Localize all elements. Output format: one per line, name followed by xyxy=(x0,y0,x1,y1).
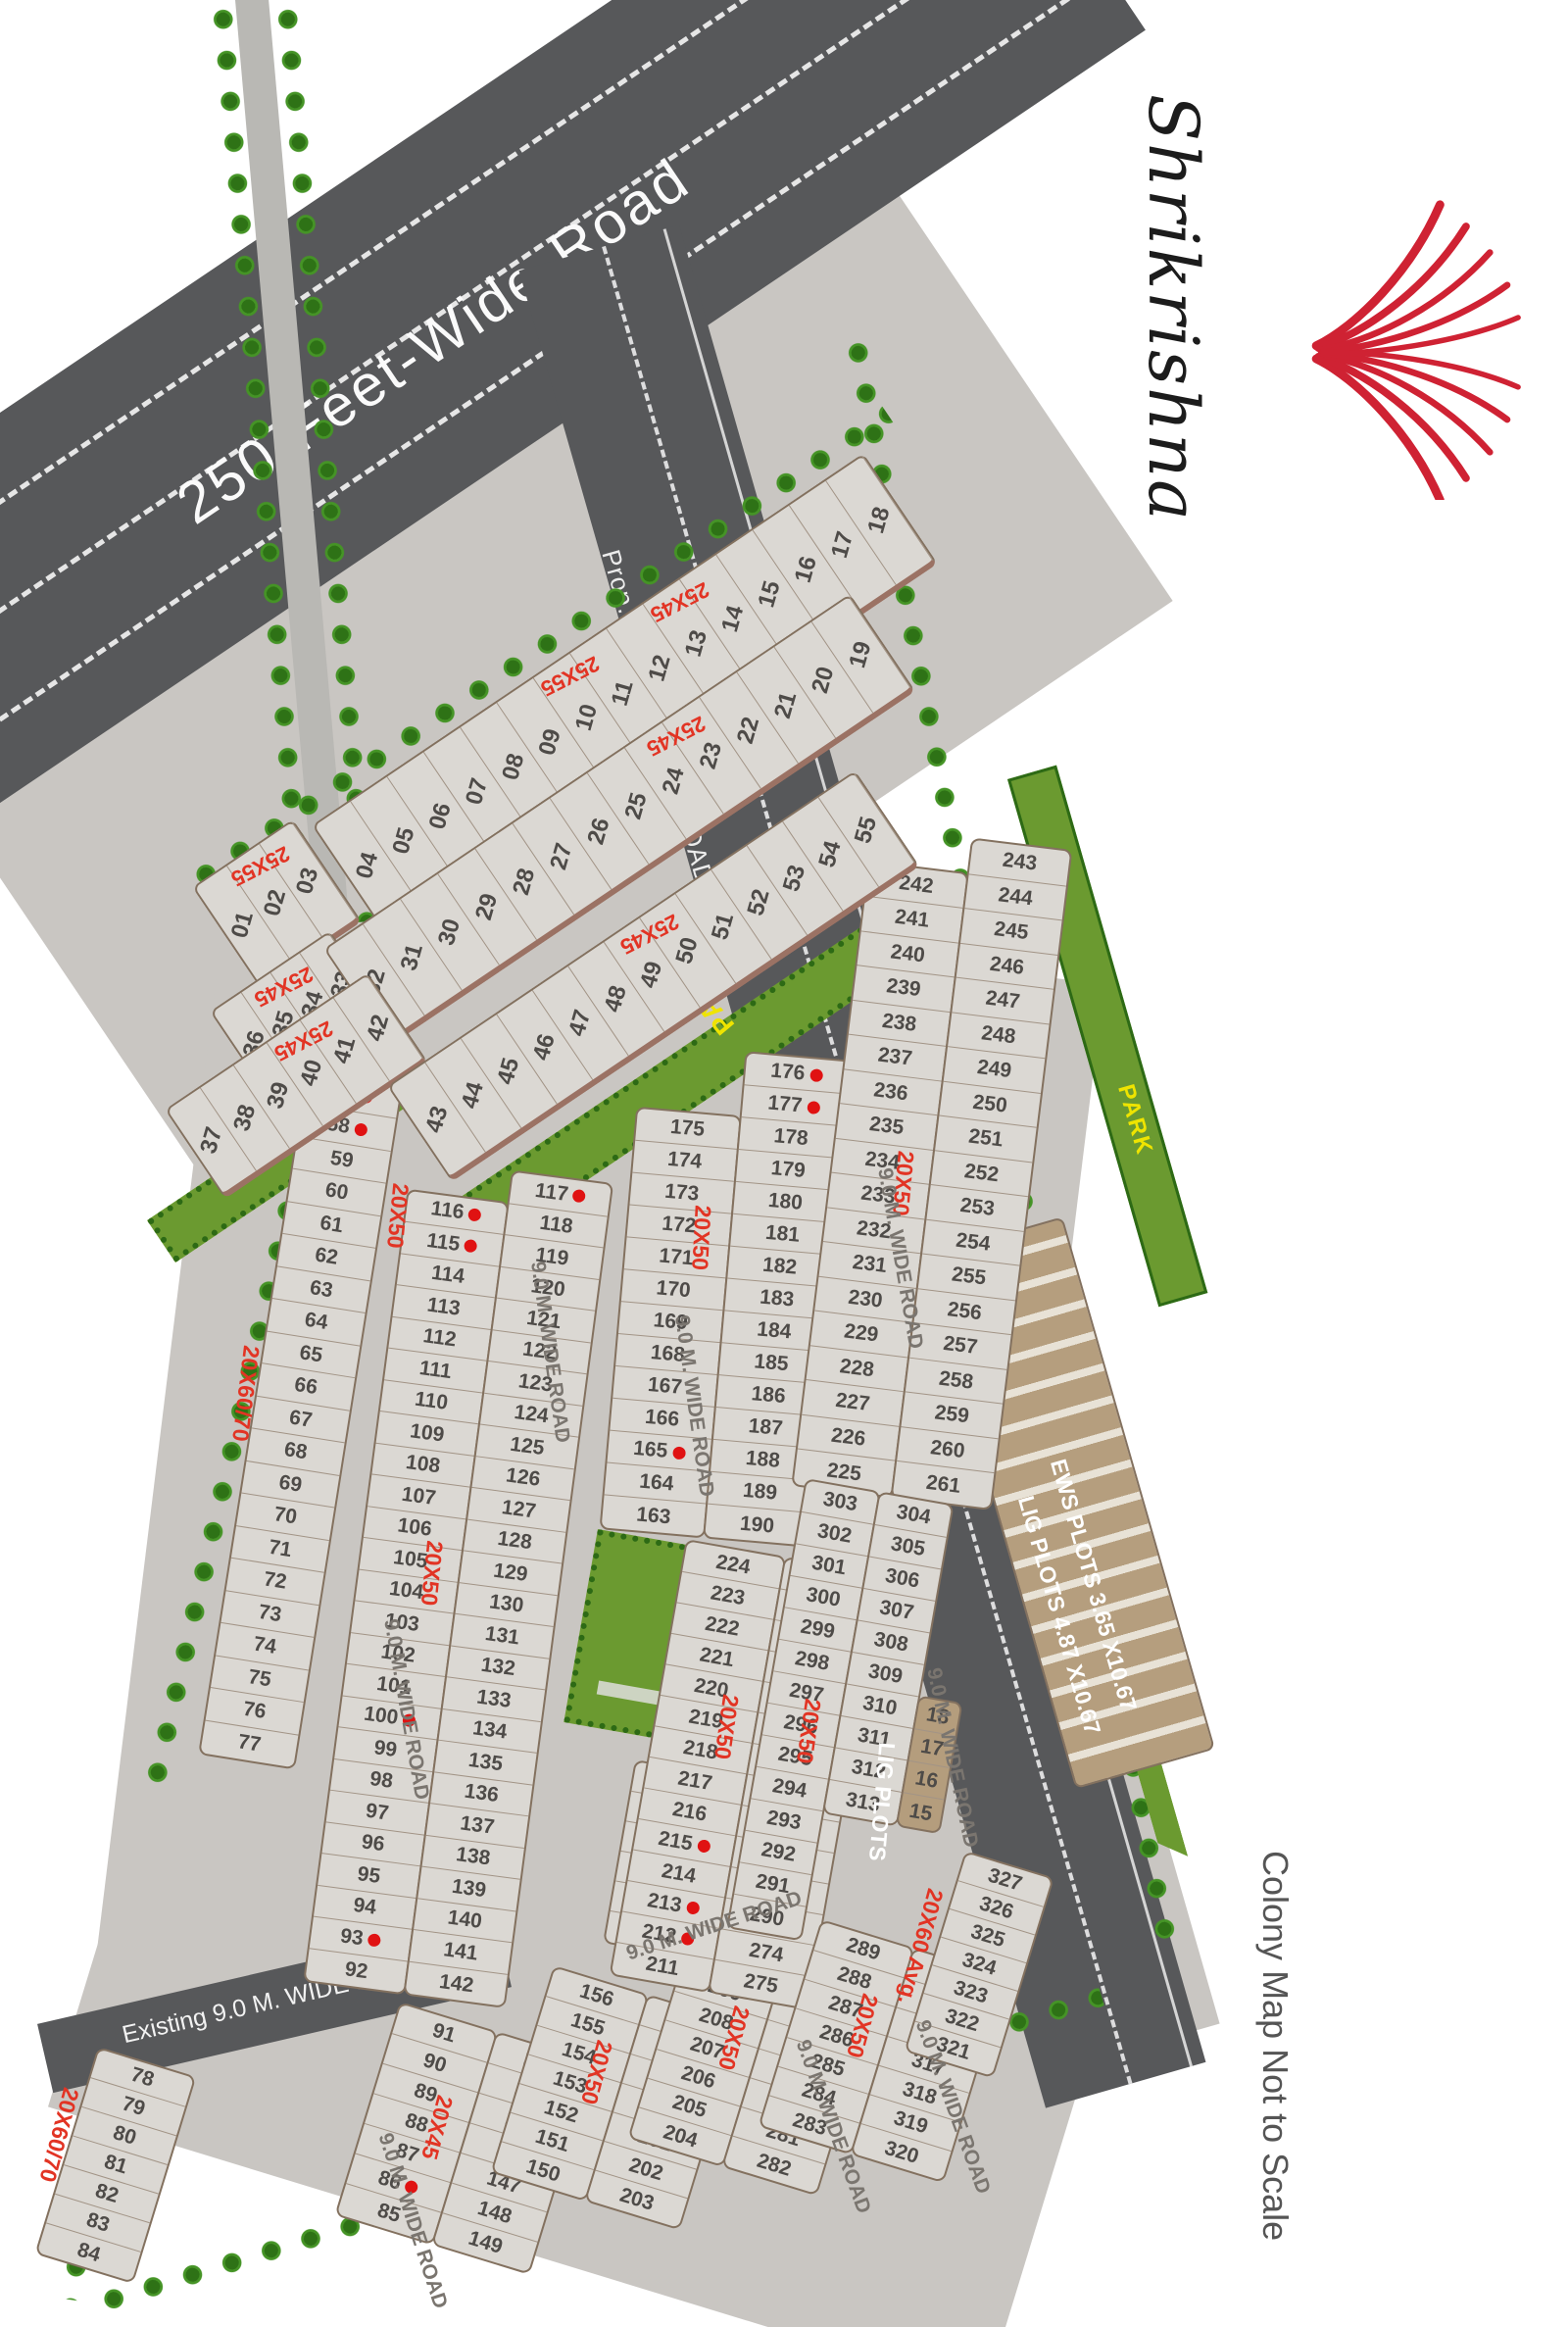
plot-number: 98 xyxy=(368,1767,394,1794)
plot-number: 228 xyxy=(839,1355,876,1382)
plot-number: 42 xyxy=(362,1012,395,1044)
plot-number: 20 xyxy=(807,664,840,696)
plot-number: 30 xyxy=(433,916,466,948)
plot-number: 164 xyxy=(638,1470,674,1497)
plot-number: 275 xyxy=(742,1969,780,1999)
plot-number: 303 xyxy=(821,1488,859,1517)
plot-number: 76 xyxy=(241,1698,268,1724)
plot-number: 83 xyxy=(83,2208,112,2238)
plot-number: 46 xyxy=(528,1031,562,1064)
plot-number: 61 xyxy=(318,1212,345,1238)
plot-number: 69 xyxy=(277,1470,304,1497)
plot-number: 176 xyxy=(769,1060,806,1086)
plot-number: 301 xyxy=(809,1552,848,1581)
plot-number: 255 xyxy=(951,1263,988,1291)
plot-number: 213 xyxy=(646,1888,684,1917)
plot-number: 74 xyxy=(252,1633,278,1659)
plot-number: 09 xyxy=(533,726,566,759)
plot-number: 187 xyxy=(748,1414,784,1441)
plot-number: 227 xyxy=(834,1389,871,1416)
plot-number: 81 xyxy=(101,2151,129,2180)
plot-number: 82 xyxy=(92,2179,121,2208)
plot-number: 10 xyxy=(569,702,603,734)
plot-number: 116 xyxy=(429,1197,465,1224)
plot-number: 114 xyxy=(430,1262,466,1289)
plot-number: 50 xyxy=(671,934,705,966)
plot-number: 137 xyxy=(459,1811,496,1839)
brand-logo-text: Shrikrishna xyxy=(1133,94,1213,522)
plot-number: 125 xyxy=(509,1432,546,1460)
sold-dot-icon xyxy=(685,1901,700,1915)
plot-number: 165 xyxy=(632,1437,668,1463)
plot-number: 77 xyxy=(236,1730,263,1757)
plot-number: 180 xyxy=(767,1189,804,1215)
sold-dot-icon xyxy=(367,1933,382,1948)
plot-number: 222 xyxy=(704,1611,742,1641)
plot-number: 186 xyxy=(751,1382,787,1409)
plot-number: 28 xyxy=(508,866,541,898)
plot-number: 115 xyxy=(425,1229,462,1257)
plot-number: 55 xyxy=(850,814,883,846)
plot-number: 91 xyxy=(429,2018,458,2048)
plot-number: 117 xyxy=(534,1179,570,1207)
plot-number: 70 xyxy=(272,1503,299,1529)
sold-dot-icon xyxy=(354,1122,368,1137)
plot-number: 299 xyxy=(799,1615,837,1645)
plot-number: 112 xyxy=(421,1324,458,1352)
sold-dot-icon xyxy=(572,1189,587,1204)
plot-number: 73 xyxy=(257,1601,283,1627)
plot-number: 45 xyxy=(492,1055,525,1087)
plot-number: 294 xyxy=(770,1774,808,1804)
plot-number: 40 xyxy=(295,1057,328,1089)
park-label: PARK xyxy=(1111,1081,1157,1159)
plot-number: 72 xyxy=(262,1568,288,1595)
plot-number: 170 xyxy=(656,1276,692,1303)
plot-number: 141 xyxy=(442,1938,479,1965)
plot-number: 133 xyxy=(475,1685,513,1712)
plot-number: 23 xyxy=(695,739,728,771)
plot-number: 11 xyxy=(607,677,640,709)
plot-number: 307 xyxy=(878,1596,916,1625)
plot-number: 231 xyxy=(851,1251,888,1278)
plot-number: 97 xyxy=(365,1799,390,1825)
plot-number: 25 xyxy=(620,790,654,822)
plot-number: 79 xyxy=(119,2092,147,2121)
plot-number: 138 xyxy=(455,1843,492,1870)
plot-number: 302 xyxy=(815,1519,854,1549)
plot-number: 244 xyxy=(997,883,1034,911)
plot-number: 136 xyxy=(463,1780,500,1807)
plot-number: 298 xyxy=(793,1647,831,1676)
plot-number: 66 xyxy=(293,1373,319,1400)
plot-number: 78 xyxy=(128,2063,157,2093)
plot-number: 96 xyxy=(360,1831,385,1857)
plot-number: 128 xyxy=(496,1527,533,1555)
plot-number: 02 xyxy=(259,886,292,918)
plot-number: 247 xyxy=(984,987,1021,1015)
plot-number: 37 xyxy=(195,1124,228,1157)
plot-number: 93 xyxy=(339,1924,365,1951)
plot-number: 52 xyxy=(743,886,776,918)
plot-number: 12 xyxy=(643,652,676,684)
plot-number: 304 xyxy=(895,1501,933,1530)
plot-number: 127 xyxy=(500,1496,537,1523)
plot-number: 181 xyxy=(764,1221,801,1248)
plot-number: 237 xyxy=(876,1044,913,1071)
sold-dot-icon xyxy=(696,1839,710,1854)
plot-number: 235 xyxy=(868,1113,906,1140)
plot-number: 95 xyxy=(356,1862,381,1889)
plot-number: 142 xyxy=(438,1970,475,1998)
plot-number: 293 xyxy=(765,1807,804,1836)
plot-number: 149 xyxy=(465,2227,506,2259)
plot-number: 189 xyxy=(742,1479,778,1506)
plot-number: 185 xyxy=(753,1350,789,1376)
plot-number: 308 xyxy=(872,1628,910,1658)
plot-15: 15 xyxy=(898,1793,944,1832)
plot-number: 109 xyxy=(409,1419,446,1447)
plot-number: 64 xyxy=(303,1309,329,1335)
plot-number: 305 xyxy=(889,1532,927,1561)
plot-number: 47 xyxy=(563,1007,597,1039)
plot-number: 215 xyxy=(657,1826,695,1856)
plot-number: 67 xyxy=(287,1406,314,1432)
plot-number: 246 xyxy=(989,953,1026,980)
plot-number: 24 xyxy=(658,765,691,797)
plot-number: 108 xyxy=(405,1451,442,1478)
plot-number: 230 xyxy=(847,1285,884,1312)
plot-number: 175 xyxy=(669,1115,706,1142)
plot-number: 39 xyxy=(262,1079,295,1112)
plot-number: 257 xyxy=(942,1332,979,1360)
plot-number: 29 xyxy=(470,891,504,923)
plot-number: 282 xyxy=(755,2149,795,2181)
plot-number: 63 xyxy=(308,1276,334,1303)
plot-number: 310 xyxy=(860,1692,899,1721)
plot-number: 80 xyxy=(110,2121,138,2151)
plot-number: 26 xyxy=(582,815,615,847)
plot-number: 54 xyxy=(813,838,847,870)
map-disclaimer: Colony Map Not to Scale xyxy=(1254,1851,1296,2241)
plot-number: 178 xyxy=(773,1124,809,1151)
plot-number: 224 xyxy=(714,1550,753,1579)
plot-number: 177 xyxy=(766,1091,803,1117)
plot-number: 274 xyxy=(748,1938,786,1967)
plot-number: 254 xyxy=(955,1228,992,1256)
plot-number: 140 xyxy=(446,1906,483,1934)
plot-number: 259 xyxy=(933,1402,970,1429)
plot-number: 300 xyxy=(805,1583,843,1612)
plot-number: 243 xyxy=(1002,849,1039,876)
plot-number: 126 xyxy=(505,1464,542,1492)
plot-number: 62 xyxy=(314,1244,340,1270)
plot-size-label: 20X50 xyxy=(686,1205,715,1271)
plot-number: 90 xyxy=(420,2049,449,2078)
plot-number: 150 xyxy=(523,2154,563,2187)
plot-number: 261 xyxy=(925,1471,962,1499)
plot-number: 182 xyxy=(761,1254,798,1280)
plot-number: 19 xyxy=(844,638,877,670)
plot-number: 16 xyxy=(789,554,822,586)
plot-number: 65 xyxy=(298,1341,324,1367)
plot-number: 248 xyxy=(980,1021,1017,1049)
plot-number: 221 xyxy=(698,1643,736,1672)
plot-number: 163 xyxy=(635,1503,671,1529)
plot-number: 129 xyxy=(492,1559,529,1586)
plot-number: 132 xyxy=(479,1654,516,1681)
plot-number: 214 xyxy=(660,1859,698,1889)
plot-number: 53 xyxy=(778,862,811,894)
plot-number: 18 xyxy=(862,504,896,536)
plot-number: 306 xyxy=(883,1564,921,1594)
plot-number: 183 xyxy=(759,1286,795,1312)
plot-number: 84 xyxy=(74,2238,103,2267)
park-path xyxy=(597,1681,661,1706)
colony-map: 250-Feet-Wide-Road Prop. 100 Feet WIDE R… xyxy=(0,0,1568,2327)
plot-number: 22 xyxy=(732,714,765,746)
plot-number: 107 xyxy=(400,1482,437,1510)
plot-number: 252 xyxy=(963,1160,1001,1187)
plot-number: 75 xyxy=(247,1665,273,1692)
plot-number: 48 xyxy=(600,982,633,1015)
plot-number: 14 xyxy=(716,603,750,635)
plot-number: 113 xyxy=(425,1293,462,1320)
plot-number: 13 xyxy=(679,627,712,660)
plot-number: 166 xyxy=(644,1406,680,1432)
plot-number: 16 xyxy=(913,1766,940,1794)
plot-number: 17 xyxy=(826,528,859,561)
plot-number: 15 xyxy=(907,1799,934,1826)
plot-number: 251 xyxy=(967,1125,1004,1153)
plot-number: 253 xyxy=(958,1194,996,1221)
plot-number: 49 xyxy=(635,959,668,991)
plot-number: 43 xyxy=(420,1103,454,1135)
plot-number: 59 xyxy=(328,1146,355,1172)
sold-dot-icon xyxy=(467,1208,482,1222)
plot-number: 256 xyxy=(946,1298,983,1325)
plot-number: 92 xyxy=(343,1957,368,1984)
plot-number: 190 xyxy=(739,1511,775,1538)
plot-number: 238 xyxy=(881,1010,918,1037)
plot-number: 174 xyxy=(666,1148,703,1174)
plot-number: 148 xyxy=(475,2197,515,2229)
plot-number: 118 xyxy=(538,1212,574,1239)
plot-number: 131 xyxy=(484,1622,521,1650)
plot-number: 134 xyxy=(471,1716,509,1744)
plot-number: 184 xyxy=(756,1317,792,1344)
sold-dot-icon xyxy=(672,1446,686,1460)
plot-number: 203 xyxy=(617,2183,658,2215)
plot-number: 239 xyxy=(885,974,922,1002)
plot-number: 188 xyxy=(745,1447,781,1473)
plot-number: 44 xyxy=(457,1079,490,1112)
sold-dot-icon xyxy=(807,1100,820,1114)
plot-number: 320 xyxy=(882,2136,922,2168)
plot-number: 38 xyxy=(228,1102,262,1134)
plot-number: 216 xyxy=(670,1798,709,1827)
plot-number: 124 xyxy=(513,1401,550,1428)
plot-number: 250 xyxy=(971,1090,1008,1117)
plot-number: 04 xyxy=(351,850,384,882)
sold-dot-icon xyxy=(464,1239,478,1254)
plot-number: 60 xyxy=(323,1179,350,1206)
plot-number: 68 xyxy=(282,1438,309,1464)
plot-number: 217 xyxy=(676,1766,714,1796)
plot-number: 130 xyxy=(488,1591,525,1618)
plot-number: 229 xyxy=(843,1320,880,1348)
plot-number: 111 xyxy=(417,1357,453,1384)
plot-number: 110 xyxy=(414,1388,450,1415)
plot-number: 31 xyxy=(396,941,429,973)
plot-number: 94 xyxy=(352,1894,377,1920)
plot-number: 08 xyxy=(497,751,530,783)
plot-number: 03 xyxy=(291,865,324,897)
plot-number: 51 xyxy=(707,911,740,943)
plot-number: 27 xyxy=(545,840,578,872)
plot-number: 21 xyxy=(769,689,803,721)
plot-number: 06 xyxy=(423,800,457,832)
plot-number: 241 xyxy=(894,906,931,933)
plot-number: 292 xyxy=(759,1838,798,1867)
plot-number: 249 xyxy=(976,1056,1013,1083)
plot-number: 223 xyxy=(709,1581,747,1610)
plot-number: 258 xyxy=(938,1366,975,1394)
brand-wings-icon xyxy=(1303,196,1529,500)
sold-dot-icon xyxy=(809,1068,823,1082)
plot-number: 135 xyxy=(467,1749,505,1776)
plot-number: 106 xyxy=(396,1514,433,1542)
plot-number: 139 xyxy=(451,1875,488,1903)
plot-number: 309 xyxy=(866,1659,905,1689)
plot-number: 01 xyxy=(226,909,260,941)
plot-number: 204 xyxy=(661,2120,701,2153)
plot-number: 236 xyxy=(872,1078,909,1106)
plot-number: 05 xyxy=(387,824,420,857)
plot-number: 15 xyxy=(753,578,786,611)
plot-number: 179 xyxy=(770,1157,807,1183)
plot-number: 99 xyxy=(372,1736,398,1762)
plot-number: 71 xyxy=(268,1535,294,1561)
plot-number: 240 xyxy=(889,940,926,967)
plot-number: 07 xyxy=(461,775,494,808)
plot-number: 173 xyxy=(663,1180,700,1207)
plot-number: 226 xyxy=(830,1423,867,1451)
plot-number: 260 xyxy=(929,1436,966,1463)
plot-number: 245 xyxy=(993,917,1030,945)
